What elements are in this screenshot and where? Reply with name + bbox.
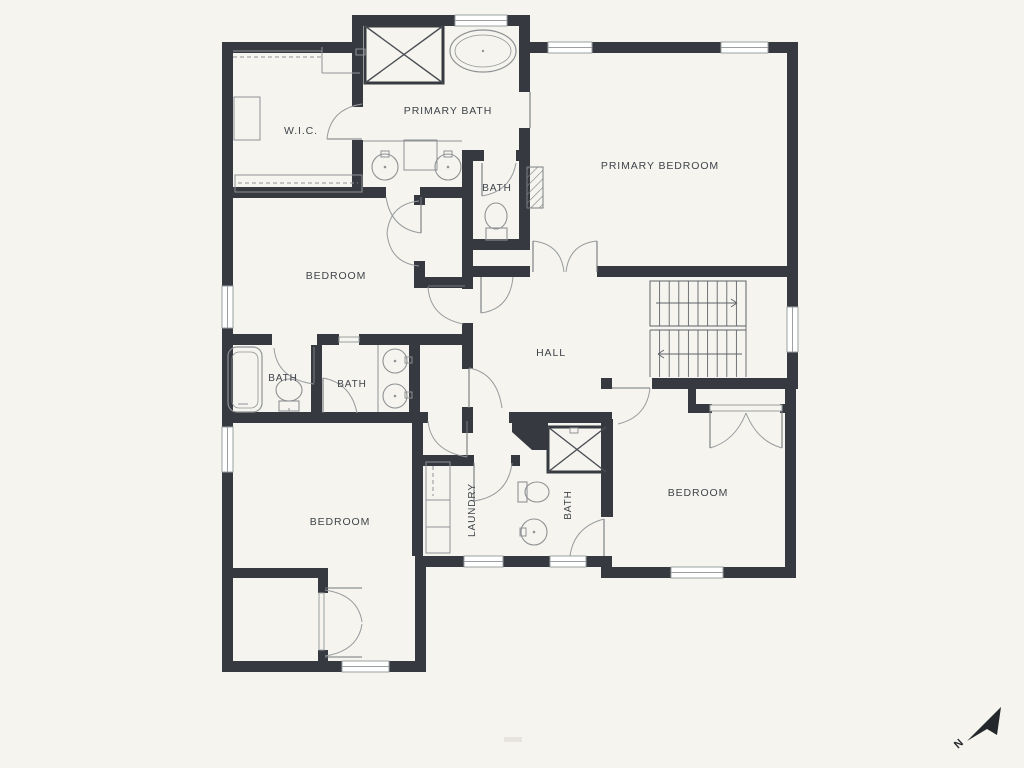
north-label: N [952,737,966,751]
door-swing-arc [566,241,597,272]
door-swing-arc [746,413,782,448]
cased-opening [339,337,359,342]
room-label: BATH [268,373,298,384]
bathtub-drain [482,50,484,52]
room-label: LAUNDRY [467,483,478,537]
wall-segment [652,378,798,389]
casework [404,140,437,170]
door-swing-arc [428,287,463,324]
casework [234,97,260,140]
cased-opening [710,405,782,411]
sink-drain [533,531,536,534]
toilet-bowl [485,203,507,229]
room-label: W.I.C. [284,125,318,137]
door-swing-arc [387,201,419,233]
door-swing-arc [327,104,362,139]
floor-plan-canvas: W.I.C.PRIMARY BATHPRIMARY BEDROOMBATHBED… [0,0,1024,768]
wall-segment [785,385,796,578]
wall-segment [222,334,272,345]
room-label: BATH [337,379,367,390]
wall-segment [409,345,420,412]
wall-segment [462,323,473,369]
door-swing-arc [481,277,513,313]
wall-segment [317,334,339,345]
wall-segment [688,385,696,413]
wall-segment [601,378,612,389]
wall-segment [222,412,428,423]
bathtub-rect-inner [232,352,258,408]
sink-drain [384,166,387,169]
door-swing-arc [325,624,362,656]
wall-wedge [512,419,548,450]
bathtub-rect [228,347,262,412]
wall-segment [597,266,798,277]
floor-plan-drawing: W.I.C.PRIMARY BATHPRIMARY BEDROOMBATHBED… [0,0,1024,768]
casework [570,428,578,433]
door-swing-arc [618,388,650,424]
room-label: BATH [482,183,512,194]
wall-segment [318,568,328,593]
door-swing-arc [533,241,564,272]
room-label: BEDROOM [306,270,367,282]
room-label: BATH [563,490,574,520]
wall-segment [462,150,473,277]
hatched-chase [527,167,543,208]
room-label: BEDROOM [668,487,729,499]
casework [426,462,450,500]
room-label: PRIMARY BEDROOM [601,160,719,172]
stair-arrowhead [658,354,664,358]
door-swing-arc [570,519,604,556]
room-label: HALL [536,347,566,359]
wall-segment [511,455,520,466]
sink-drain [394,395,397,398]
toilet-tank [486,228,507,240]
wall-segment [352,42,363,107]
casework [426,527,450,553]
wall-segment [414,261,425,277]
casework [426,500,450,527]
toilet-tank [518,482,527,502]
wall-segment [359,334,462,345]
wall-segment [420,187,466,198]
wall-segment [412,423,423,556]
faint-watermark [504,737,522,742]
door-swing-arc [325,590,362,622]
wall-segment [462,266,530,277]
cased-opening [319,593,324,650]
room-label: BEDROOM [310,516,371,528]
wall-segment [233,568,328,578]
wall-segment [318,650,328,672]
north-arrow-icon [967,707,1001,741]
wall-segment [311,345,322,412]
sink-drain [447,166,450,169]
door-swing-arc [474,463,512,501]
room-label: PRIMARY BATH [404,105,492,117]
wall-segment [415,556,426,672]
door-swing-arc [469,368,502,408]
wall-segment [414,195,425,205]
toilet-bowl [525,482,549,502]
door-swing-arc [428,421,467,457]
sink-drain [394,360,397,363]
stair-arrowhead [658,350,664,354]
wall-segment [462,277,473,289]
door-swing-arc [710,413,746,448]
wall-segment [519,15,530,92]
